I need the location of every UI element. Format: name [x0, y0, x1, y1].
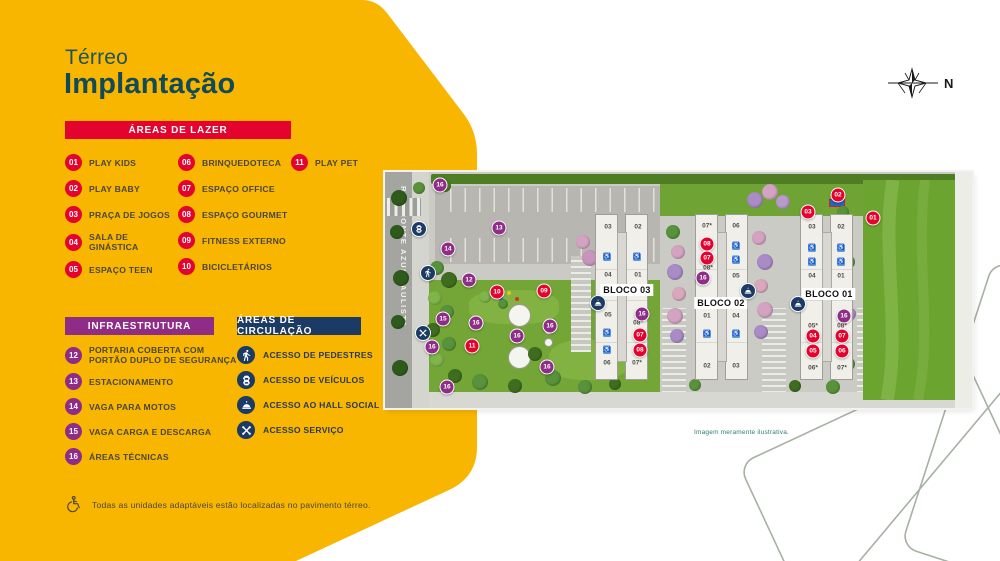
plan-car-icon	[411, 221, 427, 237]
tree	[472, 374, 488, 390]
section-header-infra: INFRAESTRUTURA	[65, 317, 214, 335]
legend-item-lazer-06: 06BRINQUEDOTECA	[178, 154, 291, 171]
accessible-unit-icon: ♿	[732, 330, 740, 338]
tree	[757, 302, 773, 318]
footnote-text: Todas as unidades adaptáveis estão local…	[92, 500, 371, 510]
unit-label: 04	[732, 313, 739, 320]
legend-item-label: BRINQUEDOTECA	[202, 158, 281, 168]
legend-item-label: ACESSO SERVIÇO	[263, 425, 344, 435]
wheelchair-icon	[63, 495, 82, 514]
accessible-unit-icon: ♿	[837, 258, 845, 266]
walkway-stairs	[762, 308, 786, 393]
playground-dot	[507, 291, 511, 295]
legend-item-infra-12: 12PORTARIA COBERTA COM PORTÃO DUPLO DE S…	[65, 345, 240, 365]
plan-caption: Imagem meramente ilustrativa.	[694, 429, 789, 436]
legend-item-lazer-05: 05ESPAÇO TEEN	[65, 261, 178, 278]
unit-label: 03	[604, 224, 611, 231]
unit-label: 02	[634, 224, 641, 231]
legend-badge: 10	[178, 258, 195, 275]
plan-marker-13: 13	[492, 221, 507, 236]
tree	[393, 270, 409, 286]
legend-item-infra-15: 15VAGA CARGA E DESCARGA	[65, 423, 240, 440]
tree	[670, 329, 684, 343]
legend-item-label: PLAY BABY	[89, 184, 140, 194]
legend-badge: 04	[65, 234, 82, 251]
legend-item-label: BICICLETÁRIOS	[202, 262, 272, 272]
tree	[428, 291, 442, 305]
unit-label: 04	[604, 272, 611, 279]
legend-item-circulacao: ACESSO DE VEÍCULOS	[237, 371, 387, 389]
tree	[508, 379, 522, 393]
tree	[576, 235, 590, 249]
bloco-label: BLOCO 01	[802, 288, 855, 300]
car-icon	[237, 371, 255, 389]
plan-marker-04: 04	[806, 329, 821, 344]
legend-item-lazer-07: 07ESPAÇO OFFICE	[178, 180, 291, 197]
legend-badge: 14	[65, 398, 82, 415]
page-title: Implantação	[64, 68, 235, 101]
legend-badge: 15	[65, 423, 82, 440]
tree	[391, 315, 405, 329]
plan-marker-05: 05	[806, 344, 821, 359]
plan-marker-15: 15	[436, 312, 451, 327]
unit-label: 06*	[808, 365, 818, 372]
tree	[392, 360, 408, 376]
unit-label: 01	[837, 273, 844, 280]
plan-marker-03: 03	[801, 205, 816, 220]
compass-north-label: N	[944, 76, 953, 91]
plan-marker-16: 16	[696, 271, 711, 286]
legend-item-label: PLAY KIDS	[89, 158, 136, 168]
plan-marker-16: 16	[540, 360, 555, 375]
legend-item-lazer-08: 08ESPAÇO GOURMET	[178, 206, 291, 223]
legend-item-lazer-09: 09FITNESS EXTERNO	[178, 232, 291, 249]
legend-item-label: VAGA PARA MOTOS	[89, 402, 176, 412]
legend-item-label: SALA DE GINÁSTICA	[89, 232, 178, 252]
unit-label: 03	[732, 363, 739, 370]
plan-marker-16: 16	[469, 316, 484, 331]
unit-label: 04	[808, 273, 815, 280]
legend-badge: 03	[65, 206, 82, 223]
plan-marker-16: 16	[543, 319, 558, 334]
legend-item-label: VAGA CARGA E DESCARGA	[89, 427, 211, 437]
tree	[689, 379, 701, 391]
tree	[578, 380, 592, 394]
bloco-label: BLOCO 03	[600, 284, 653, 296]
legend-item-lazer-04: 04SALA DE GINÁSTICA	[65, 232, 178, 252]
walkway-stairs	[571, 256, 591, 352]
tree	[672, 287, 686, 301]
legend-list-infra: 12PORTARIA COBERTA COM PORTÃO DUPLO DE S…	[65, 345, 240, 473]
tree	[391, 190, 407, 206]
accessible-unit-icon: ♿	[703, 330, 711, 338]
plan-marker-16: 16	[635, 307, 650, 322]
tree	[430, 353, 444, 367]
plan-marker-08: 08	[633, 343, 648, 358]
legend-item-infra-14: 14VAGA PARA MOTOS	[65, 398, 240, 415]
legend-item-label: PORTARIA COBERTA COM PORTÃO DUPLO DE SEG…	[89, 345, 240, 365]
legend-item-label: ACESSO DE VEÍCULOS	[263, 375, 364, 385]
legend-item-lazer-03: 03PRAÇA DE JOGOS	[65, 206, 178, 223]
unit-label: 05	[732, 273, 739, 280]
accessible-unit-icon: ♿	[837, 244, 845, 252]
tree	[667, 308, 683, 324]
water-tank-small	[544, 338, 553, 347]
plan-right-edge	[955, 172, 972, 408]
plan-marker-14: 14	[441, 242, 456, 257]
plan-marker-10: 10	[490, 285, 505, 300]
legend-item-label: ESPAÇO GOURMET	[202, 210, 287, 220]
tree	[666, 225, 680, 239]
footnote: Todas as unidades adaptáveis estão local…	[63, 495, 371, 514]
plan-marker-16: 16	[440, 380, 455, 395]
compass: N	[886, 62, 958, 104]
legend-badge: 06	[178, 154, 195, 171]
unit-label: 02	[703, 363, 710, 370]
legend-badge: 13	[65, 373, 82, 390]
tree	[762, 184, 778, 200]
legend-item-circulacao: ACESSO AO HALL SOCIAL	[237, 396, 387, 414]
legend-item-label: ESTACIONAMENTO	[89, 377, 173, 387]
legend-badge: 07	[178, 180, 195, 197]
plan-hall-icon	[590, 295, 606, 311]
accessible-unit-icon: ♿	[808, 258, 816, 266]
tree	[789, 380, 801, 392]
unit-label: 01	[634, 272, 641, 279]
plan-marker-16: 16	[433, 178, 448, 193]
hall-icon	[237, 396, 255, 414]
section-header-circulacao: ÁREAS DE CIRCULAÇÃO	[237, 317, 361, 335]
tree	[752, 231, 766, 245]
legend-item-label: ÁREAS TÉCNICAS	[89, 452, 169, 462]
plan-service-icon	[415, 325, 431, 341]
plan-hall-icon	[740, 283, 756, 299]
legend-item-label: PRAÇA DE JOGOS	[89, 210, 170, 220]
page-kicker: Térreo	[65, 46, 128, 70]
tree	[754, 279, 768, 293]
parking-stalls	[437, 188, 658, 212]
plan-marker-16: 16	[510, 329, 525, 344]
service-icon	[237, 421, 255, 439]
legend-badge: 16	[65, 448, 82, 465]
legend-item-infra-16: 16ÁREAS TÉCNICAS	[65, 448, 240, 465]
legend-item-circulacao: ACESSO SERVIÇO	[237, 421, 387, 439]
building-core	[617, 232, 627, 362]
legend-item-label: PLAY PET	[315, 158, 358, 168]
plan-marker-11: 11	[465, 339, 480, 354]
accessible-unit-icon: ♿	[808, 244, 816, 252]
plan-marker-07: 07	[633, 328, 648, 343]
plan-pedestrian-icon	[420, 265, 436, 281]
tree	[747, 192, 763, 208]
tree	[413, 182, 425, 194]
legend-badge: 02	[65, 180, 82, 197]
tree	[498, 299, 508, 309]
unit-label: 06	[603, 360, 610, 367]
water-tank	[508, 346, 531, 369]
tree	[776, 195, 790, 209]
unit-label: 07*	[632, 360, 642, 367]
plan-marker-16: 16	[837, 309, 852, 324]
legend-item-circulacao: ACESSO DE PEDESTRES	[237, 346, 387, 364]
legend-item-label: ESPAÇO OFFICE	[202, 184, 275, 194]
tree	[757, 254, 773, 270]
unit-label: 03	[808, 224, 815, 231]
legend-list-lazer: 01PLAY KIDS02PLAY BABY03PRAÇA DE JOGOS04…	[65, 154, 365, 306]
site-plan: RUA MONTE AZUL PAULISTA 0302	[385, 172, 972, 408]
bloco-label: BLOCO 02	[694, 297, 747, 309]
legend-badge: 05	[65, 261, 82, 278]
legend-item-label: FITNESS EXTERNO	[202, 236, 286, 246]
legend-item-label: ACESSO AO HALL SOCIAL	[263, 400, 380, 410]
legend-item-lazer-11: 11PLAY PET	[291, 154, 404, 171]
accessible-unit-icon: ♿	[633, 253, 641, 261]
legend-list-circulacao: ACESSO DE PEDESTRESACESSO DE VEÍCULOSACE…	[237, 346, 387, 446]
tree	[442, 337, 456, 351]
legend-badge: 12	[65, 347, 82, 364]
legend-item-label: ACESSO DE PEDESTRES	[263, 350, 373, 360]
accessible-unit-icon: ♿	[603, 329, 611, 337]
tree	[826, 380, 840, 394]
plan-marker-08: 08	[700, 237, 715, 252]
plan-marker-16: 16	[425, 340, 440, 355]
accessible-unit-icon: ♿	[732, 256, 740, 264]
tree	[754, 325, 768, 339]
legend-badge: 08	[178, 206, 195, 223]
tree	[528, 347, 542, 361]
unit-label: 07*	[702, 223, 712, 230]
legend-item-label: ESPAÇO TEEN	[89, 265, 153, 275]
section-header-lazer: ÁREAS DE LAZER	[65, 121, 291, 139]
plan-marker-09: 09	[537, 284, 552, 299]
playground-dot	[515, 297, 519, 301]
unit-label: 06	[732, 223, 739, 230]
legend-item-lazer-10: 10BICICLETÁRIOS	[178, 258, 291, 275]
legend-item-infra-13: 13ESTACIONAMENTO	[65, 373, 240, 390]
tree	[671, 245, 685, 259]
slide: { "header": { "kicker": "Térreo", "title…	[0, 0, 1000, 561]
plan-marker-07: 07	[835, 329, 850, 344]
pedestrian-icon	[237, 346, 255, 364]
plan-marker-06: 06	[835, 344, 850, 359]
accessible-unit-icon: ♿	[603, 346, 611, 354]
legend-badge: 11	[291, 154, 308, 171]
tree	[667, 264, 683, 280]
unit-label: 01	[703, 313, 710, 320]
legend-item-lazer-01: 01PLAY KIDS	[65, 154, 178, 171]
plan-marker-12: 12	[462, 273, 477, 288]
plan-marker-02: 02	[831, 188, 846, 203]
tree	[390, 225, 404, 239]
plan-marker-07: 07	[700, 251, 715, 266]
unit-label: 07*	[837, 365, 847, 372]
legend-badge: 01	[65, 154, 82, 171]
water-tank	[508, 304, 531, 327]
legend-badge: 09	[178, 232, 195, 249]
unit-label: 05	[604, 312, 611, 319]
plan-hall-icon	[790, 296, 806, 312]
accessible-unit-icon: ♿	[603, 253, 611, 261]
accessible-unit-icon: ♿	[732, 242, 740, 250]
legend-item-lazer-02: 02PLAY BABY	[65, 180, 178, 197]
tree	[441, 272, 457, 288]
unit-label: 02	[837, 224, 844, 231]
plan-marker-01: 01	[866, 211, 881, 226]
